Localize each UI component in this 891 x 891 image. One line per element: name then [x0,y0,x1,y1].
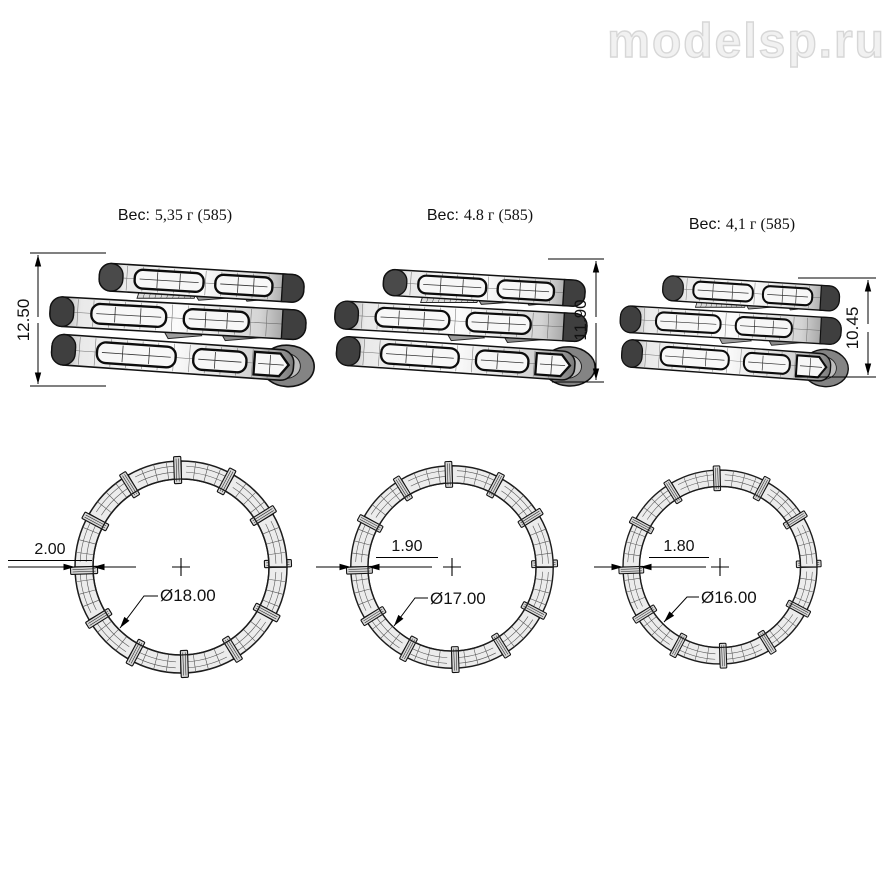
height-dimension-3: 10.45 [843,307,863,350]
diameter-leader-2 [394,598,428,626]
ring-side-view-3 [620,275,850,388]
ring-side-view-1 [49,263,315,389]
center-cross-1 [172,558,190,576]
diameter-dimension-1: Ø18.00 [160,586,216,606]
weight-prefix-2: Вес: [427,207,459,224]
technical-drawing-graphics [0,0,891,891]
weight-label-1: Вес:5,35 г (585) [55,207,295,225]
thickness-dimension-2: 1.90 [376,538,438,558]
height-dimension-2: 11.90 [571,299,591,340]
diameter-leader-1 [120,596,158,628]
height-dimension-1: 12.50 [14,299,34,342]
center-cross-3 [711,558,729,576]
center-cross-2 [443,558,461,576]
weight-value-1: 5,35 г (585) [155,207,232,224]
weight-prefix-1: Вес: [118,207,150,224]
thickness-dimension-3: 1.80 [649,538,709,558]
ring-side-view-2 [334,269,596,388]
weight-value-3: 4,1 г (585) [726,216,795,233]
weight-label-2: Вес:4.8 г (585) [360,207,600,225]
diameter-dimension-2: Ø17.00 [430,589,486,609]
thickness-dimension-1: 2.00 [8,541,92,561]
drawing-canvas: modelsp.ru [0,0,891,891]
weight-value-2: 4.8 г (585) [464,207,533,224]
diameter-dimension-3: Ø16.00 [701,588,757,608]
diameter-leader-3 [664,597,699,622]
weight-label-3: Вес:4,1 г (585) [622,216,862,234]
weight-prefix-3: Вес: [689,216,721,233]
